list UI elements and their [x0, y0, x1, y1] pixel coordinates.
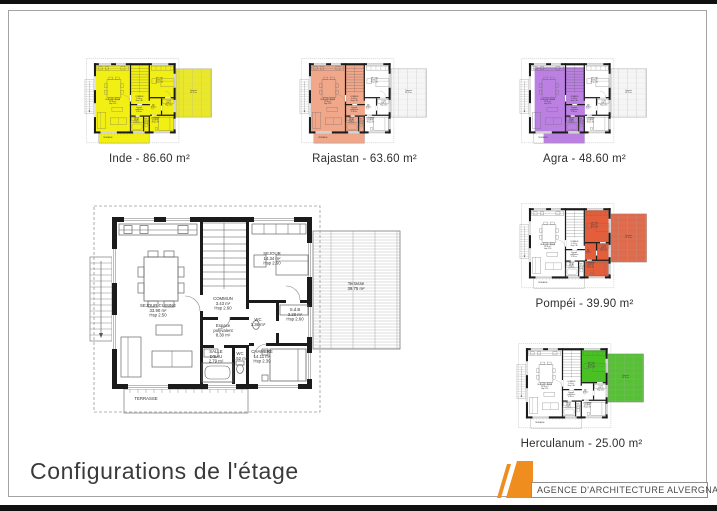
svg-text:WC1.36 m²: WC1.36 m²: [586, 105, 592, 109]
config-thumb-rajastan: SEJOUR CUISINE33.90 m²Hsp 2.50COMMUN3.43…: [299, 55, 430, 165]
svg-text:CHAMBRE14.11 m²Hsp 2.39: CHAMBRE14.11 m²Hsp 2.39: [251, 349, 273, 364]
svg-text:WC1.36 m²: WC1.36 m²: [366, 105, 372, 109]
svg-text:Espacepolyvalent8.30 m²: Espacepolyvalent8.30 m²: [567, 392, 575, 398]
svg-text:SALLED'EAU2.79 m²: SALLED'EAU2.79 m²: [568, 117, 575, 124]
svg-text:Terrasse39.75 m²: Terrasse39.75 m²: [622, 374, 629, 379]
svg-text:S.d.B3.28 m²Hsp 2.60: S.d.B3.28 m²Hsp 2.60: [600, 101, 607, 107]
svg-text:S.d.B3.28 m²Hsp 2.60: S.d.B3.28 m²Hsp 2.60: [286, 307, 304, 322]
svg-text:S.d.B3.28 m²Hsp 2.60: S.d.B3.28 m²Hsp 2.60: [597, 386, 604, 392]
svg-text:Terrasse39.75 m²: Terrasse39.75 m²: [625, 89, 632, 94]
bottom-edge-bar: [0, 505, 717, 511]
svg-text:SALLED'EAU2.79 m²: SALLED'EAU2.79 m²: [209, 349, 224, 364]
svg-text:SEJOUR CUISINE33.90 m²Hsp 2.50: SEJOUR CUISINE33.90 m²Hsp 2.50: [537, 384, 553, 390]
svg-text:WC1.36 m²: WC1.36 m²: [583, 390, 589, 394]
svg-text:SEJOUR14.34 m²Hsp 2.60: SEJOUR14.34 m²Hsp 2.60: [588, 363, 596, 369]
svg-text:SEJOUR14.34 m²Hsp 2.60: SEJOUR14.34 m²Hsp 2.60: [263, 251, 281, 266]
svg-text:WC1.52 m²: WC1.52 m²: [578, 264, 584, 268]
mini-plan-pompei: SEJOUR CUISINE33.90 m²Hsp 2.50COMMUN3.43…: [519, 200, 650, 296]
agency-name: AGENCE D'ARCHITECTURE ALVERGNAT: [537, 485, 717, 495]
svg-text:COMMUN3.43 m²Hsp 2.60: COMMUN3.43 m²Hsp 2.60: [213, 296, 233, 311]
sheet-title: Configurations de l'étage: [30, 458, 299, 485]
svg-text:SEJOUR14.34 m²Hsp 2.60: SEJOUR14.34 m²Hsp 2.60: [591, 78, 599, 84]
svg-text:SEJOUR14.34 m²Hsp 2.60: SEJOUR14.34 m²Hsp 2.60: [591, 223, 599, 229]
config-caption-rajastan: Rajastan - 63.60 m²: [299, 153, 430, 165]
mini-plan-inde: SEJOUR CUISINE33.90 m²Hsp 2.50COMMUN3.43…: [84, 55, 215, 151]
svg-text:SEJOUR14.34 m²Hsp 2.60: SEJOUR14.34 m²Hsp 2.60: [371, 78, 379, 84]
mini-plan-agra: SEJOUR CUISINE33.90 m²Hsp 2.50COMMUN3.43…: [519, 55, 650, 151]
config-caption-pompei: Pompéi - 39.90 m²: [519, 298, 650, 310]
config-thumb-agra: SEJOUR CUISINE33.90 m²Hsp 2.50COMMUN3.43…: [519, 55, 650, 165]
agency-logo-icon: [497, 461, 533, 498]
svg-text:Terrasse39.75 m²: Terrasse39.75 m²: [348, 281, 366, 291]
agency-logo-box: AGENCE D'ARCHITECTURE ALVERGNAT: [531, 482, 708, 498]
svg-text:TERRASSE: TERRASSE: [134, 396, 157, 401]
svg-text:SEJOUR14.34 m²Hsp 2.60: SEJOUR14.34 m²Hsp 2.60: [156, 78, 164, 84]
svg-text:Terrasse39.75 m²: Terrasse39.75 m²: [405, 89, 412, 94]
svg-text:SALLED'EAU2.79 m²: SALLED'EAU2.79 m²: [348, 117, 355, 124]
config-thumb-inde: SEJOUR CUISINE33.90 m²Hsp 2.50COMMUN3.43…: [84, 55, 215, 165]
config-caption-agra: Agra - 48.60 m²: [519, 153, 650, 165]
svg-text:SEJOUR CUISINE33.90 m²Hsp 2.50: SEJOUR CUISINE33.90 m²Hsp 2.50: [140, 303, 176, 318]
svg-text:SALLED'EAU2.79 m²: SALLED'EAU2.79 m²: [568, 262, 575, 269]
config-thumb-herculanum: SEJOUR CUISINE33.90 m²Hsp 2.50COMMUN3.43…: [516, 340, 647, 450]
svg-text:Espacepolyvalent8.30 m²: Espacepolyvalent8.30 m²: [213, 323, 233, 338]
svg-text:Espacepolyvalent8.30 m²: Espacepolyvalent8.30 m²: [570, 252, 578, 258]
svg-text:CHAMBRE14.11 m²Hsp 2.39: CHAMBRE14.11 m²Hsp 2.39: [366, 117, 376, 124]
svg-text:COMMUN3.43 m²Hsp 2.60: COMMUN3.43 m²Hsp 2.60: [567, 381, 576, 387]
top-edge-bar: [0, 0, 717, 4]
svg-text:WC1.52 m²: WC1.52 m²: [575, 404, 581, 408]
svg-text:SALLED'EAU2.79 m²: SALLED'EAU2.79 m²: [565, 402, 572, 409]
svg-text:S.d.B3.28 m²Hsp 2.60: S.d.B3.28 m²Hsp 2.60: [380, 101, 387, 107]
svg-text:Terrasse39.75 m²: Terrasse39.75 m²: [625, 234, 632, 239]
svg-text:SEJOUR CUISINE33.90 m²Hsp 2.50: SEJOUR CUISINE33.90 m²Hsp 2.50: [540, 244, 556, 250]
mini-plan-herculanum: SEJOUR CUISINE33.90 m²Hsp 2.50COMMUN3.43…: [516, 340, 647, 436]
svg-text:CHAMBRE14.11 m²Hsp 2.39: CHAMBRE14.11 m²Hsp 2.39: [586, 117, 596, 124]
config-caption-inde: Inde - 86.60 m²: [84, 153, 215, 165]
main-floor-plan: SEJOUR CUISINE33.90 m²Hsp 2.50COMMUN3.43…: [88, 197, 408, 432]
svg-text:TERRASSE: TERRASSE: [535, 421, 545, 424]
svg-text:CHAMBRE14.11 m²Hsp 2.39: CHAMBRE14.11 m²Hsp 2.39: [583, 402, 593, 409]
svg-text:SALLED'EAU2.79 m²: SALLED'EAU2.79 m²: [133, 117, 140, 124]
svg-text:WC1.36 m²: WC1.36 m²: [251, 317, 266, 327]
config-thumb-pompei: SEJOUR CUISINE33.90 m²Hsp 2.50COMMUN3.43…: [519, 200, 650, 310]
svg-text:COMMUN3.43 m²Hsp 2.60: COMMUN3.43 m²Hsp 2.60: [570, 241, 579, 247]
drawing-sheet: SEJOUR CUISINE33.90 m²Hsp 2.50COMMUN3.43…: [0, 0, 717, 511]
mini-plan-rajastan: SEJOUR CUISINE33.90 m²Hsp 2.50COMMUN3.43…: [299, 55, 430, 151]
config-caption-herculanum: Herculanum - 25.00 m²: [516, 438, 647, 450]
svg-text:Terrasse39.75 m²: Terrasse39.75 m²: [190, 89, 197, 94]
svg-text:TERRASSE: TERRASSE: [538, 281, 548, 284]
